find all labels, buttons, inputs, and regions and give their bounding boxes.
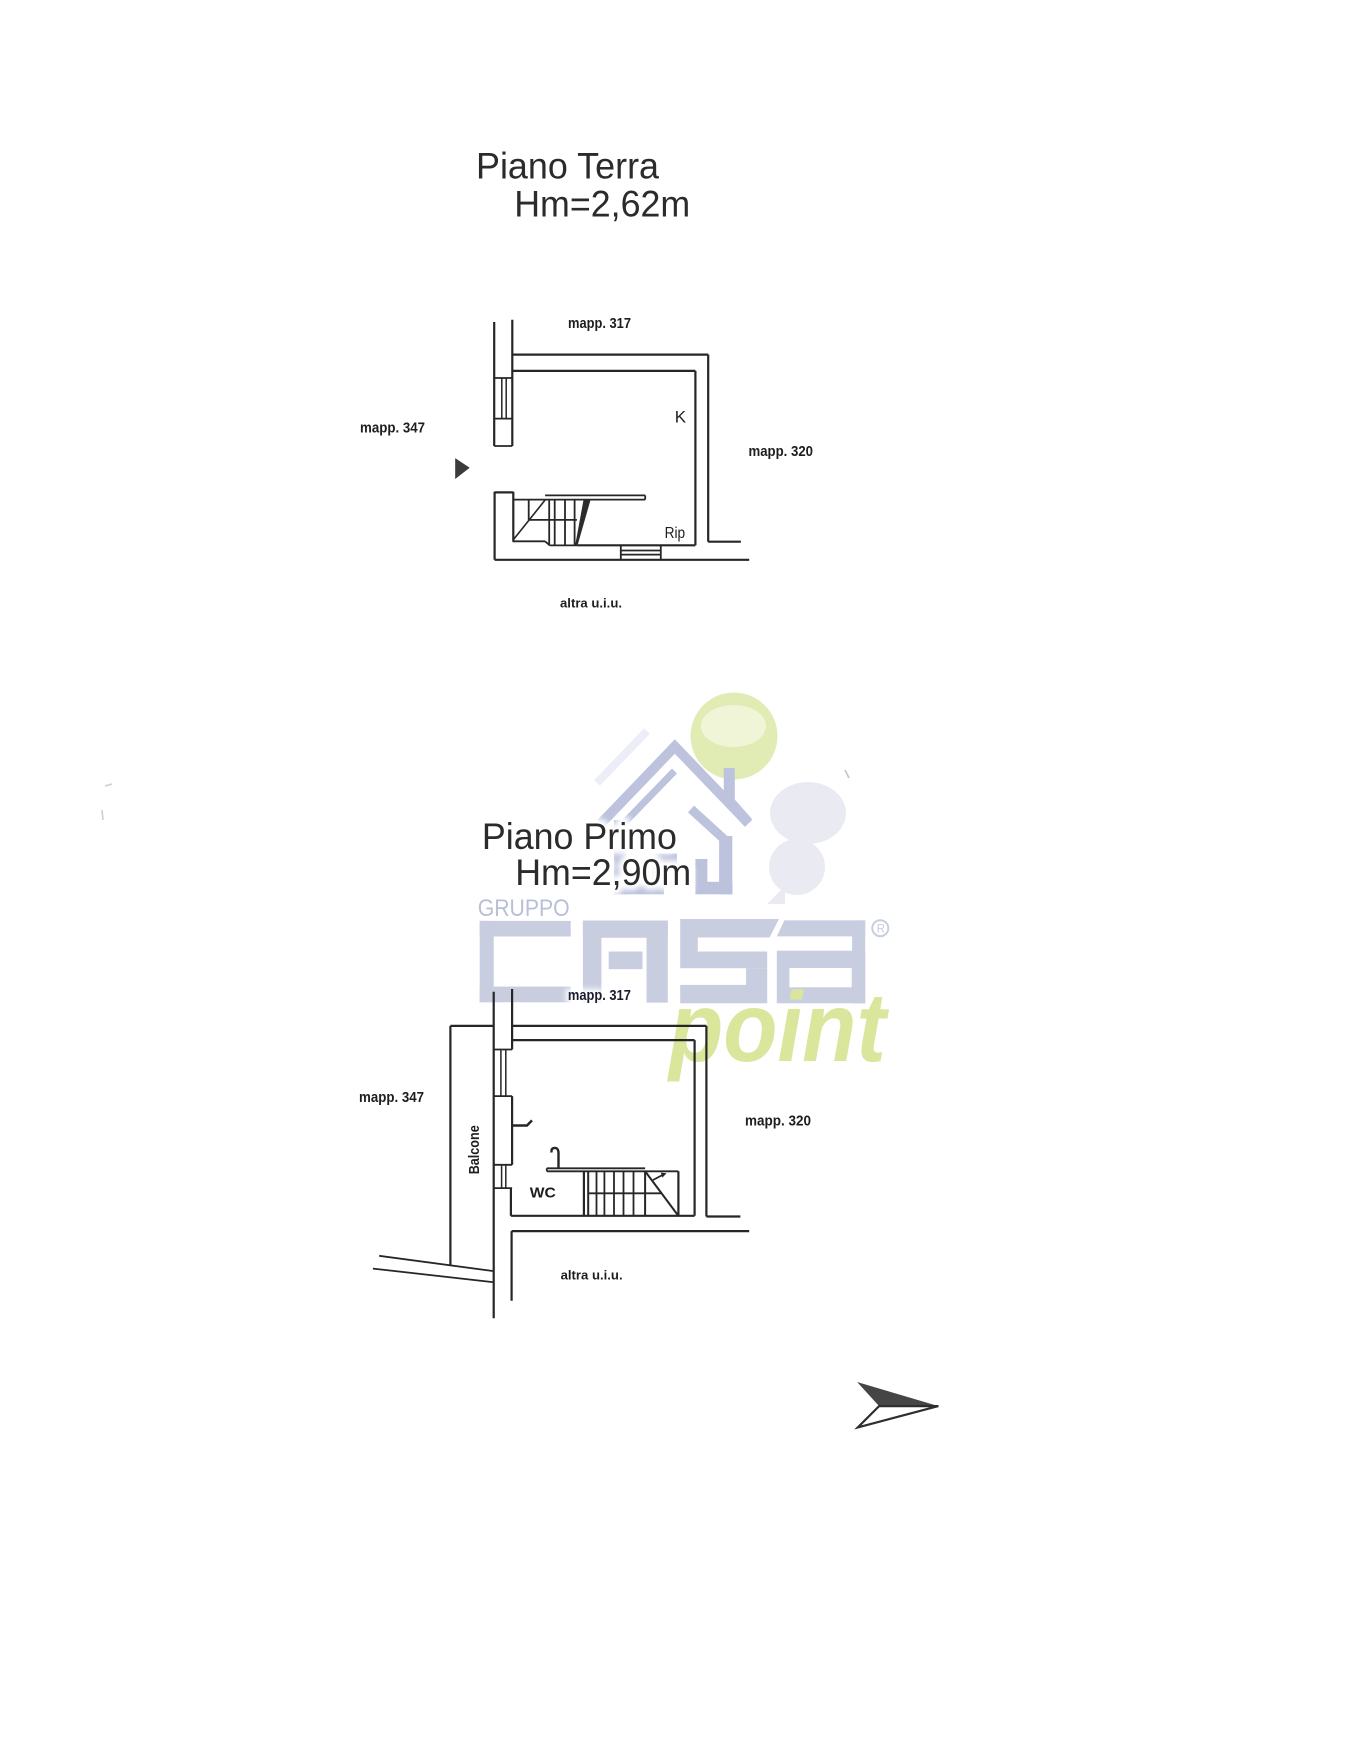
svg-text:Piano Terra: Piano Terra bbox=[476, 145, 659, 187]
svg-text:mapp. 317: mapp. 317 bbox=[568, 315, 631, 332]
svg-text:GRUPPO: GRUPPO bbox=[478, 895, 570, 922]
svg-text:mapp. 320: mapp. 320 bbox=[745, 1113, 811, 1130]
svg-text:mapp. 347: mapp. 347 bbox=[360, 419, 425, 436]
svg-text:Balcone: Balcone bbox=[466, 1125, 483, 1174]
svg-text:R: R bbox=[877, 923, 885, 935]
svg-text:WC: WC bbox=[530, 1185, 556, 1202]
svg-text:mapp. 320: mapp. 320 bbox=[749, 443, 814, 460]
svg-text:Hm=2,90m: Hm=2,90m bbox=[515, 851, 691, 893]
svg-text:Rip: Rip bbox=[665, 525, 686, 542]
svg-text:altra u.i.u.: altra u.i.u. bbox=[560, 597, 622, 611]
svg-text:K: K bbox=[675, 407, 687, 426]
svg-text:altra u.i.u.: altra u.i.u. bbox=[561, 1269, 623, 1283]
svg-text:mapp. 317: mapp. 317 bbox=[568, 987, 631, 1004]
svg-text:Hm=2,62m: Hm=2,62m bbox=[514, 183, 690, 225]
svg-text:mapp. 347: mapp. 347 bbox=[359, 1089, 424, 1106]
